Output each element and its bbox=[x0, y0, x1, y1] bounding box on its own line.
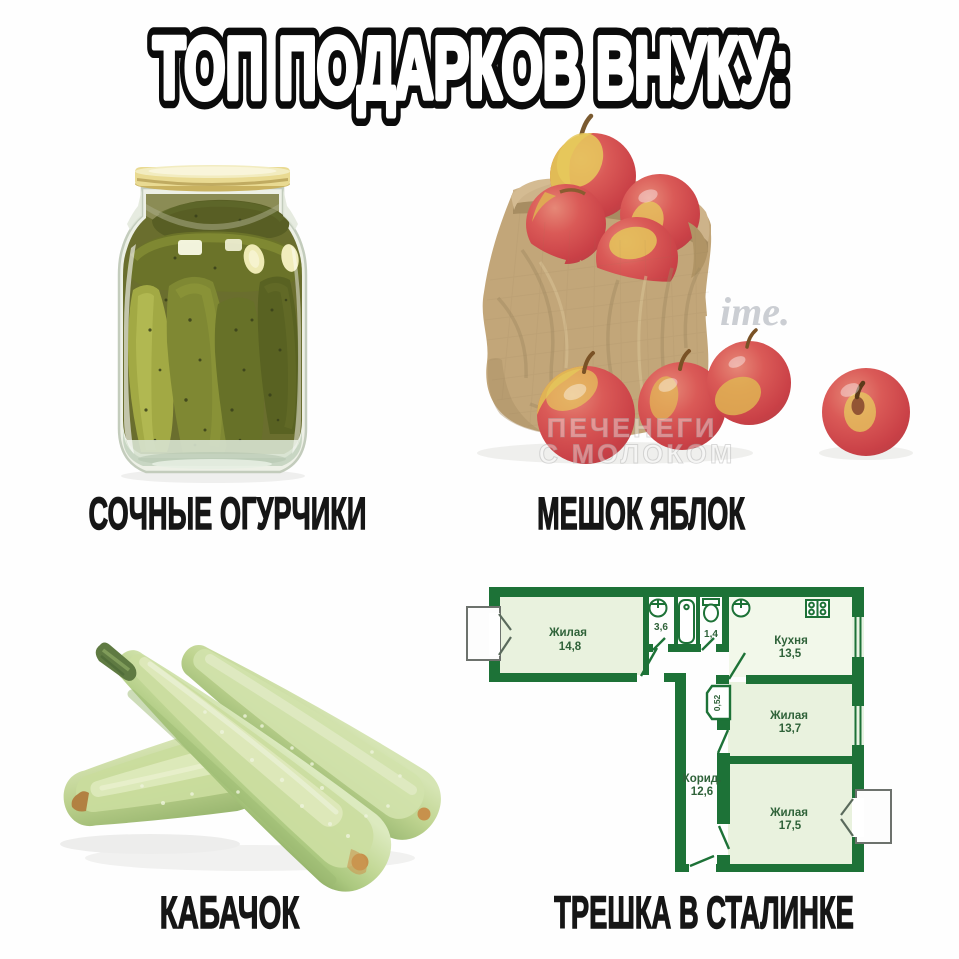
svg-text:3,6: 3,6 bbox=[654, 622, 668, 633]
svg-text:1,4: 1,4 bbox=[704, 629, 718, 640]
svg-text:17,5: 17,5 bbox=[779, 820, 802, 832]
svg-text:12,6: 12,6 bbox=[691, 786, 713, 798]
svg-text:Корид.: Корид. bbox=[683, 773, 722, 785]
svg-text:СОЧНЫЕ ОГУРЧИКИ: СОЧНЫЕ ОГУРЧИКИ bbox=[89, 488, 367, 539]
svg-text:ime.: ime. bbox=[720, 289, 790, 334]
svg-text:Кухня: Кухня bbox=[774, 635, 808, 647]
svg-text:13,7: 13,7 bbox=[779, 723, 801, 735]
svg-text:Жилая: Жилая bbox=[769, 710, 808, 722]
svg-text:0,52: 0,52 bbox=[712, 694, 722, 711]
svg-text:МЕШОК ЯБЛОК: МЕШОК ЯБЛОК bbox=[537, 488, 745, 539]
svg-text:Жилая: Жилая bbox=[548, 627, 587, 639]
svg-text:13,5: 13,5 bbox=[779, 648, 802, 660]
svg-text:С МОЛОКОМ: С МОЛОКОМ bbox=[539, 439, 736, 469]
svg-text:ТРЕШКА В СТАЛИНКЕ: ТРЕШКА В СТАЛИНКЕ bbox=[554, 887, 854, 938]
svg-text:ТОП ПОДАРКОВ ВНУКУ:: ТОП ПОДАРКОВ ВНУКУ: bbox=[153, 21, 789, 118]
svg-text:Жилая: Жилая bbox=[769, 807, 808, 819]
svg-text:14,8: 14,8 bbox=[559, 641, 582, 653]
svg-text:КАБАЧОК: КАБАЧОК bbox=[160, 889, 300, 939]
